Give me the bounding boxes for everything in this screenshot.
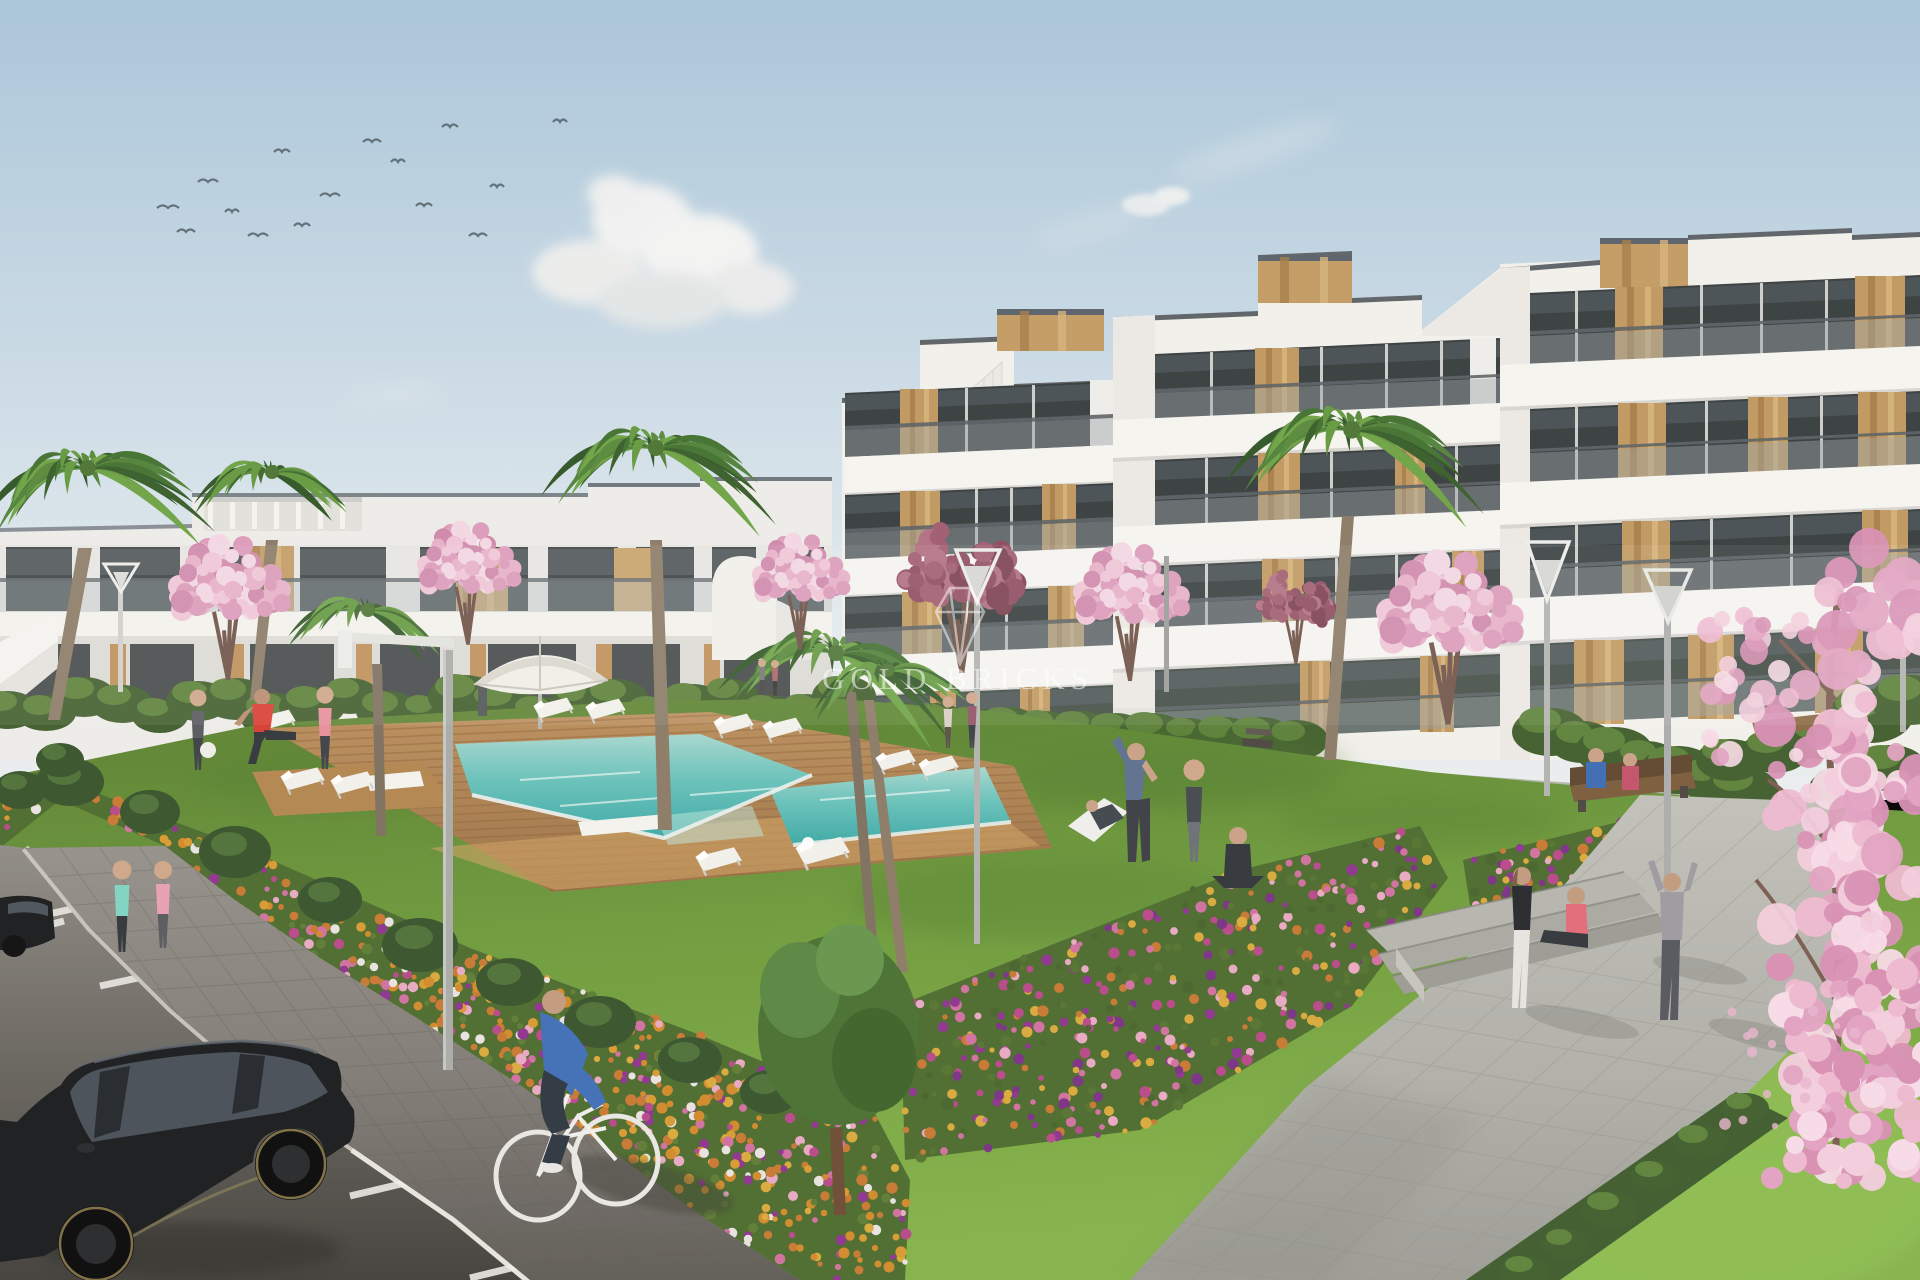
svg-text:GOLD BRICKS: GOLD BRICKS: [822, 661, 1094, 696]
